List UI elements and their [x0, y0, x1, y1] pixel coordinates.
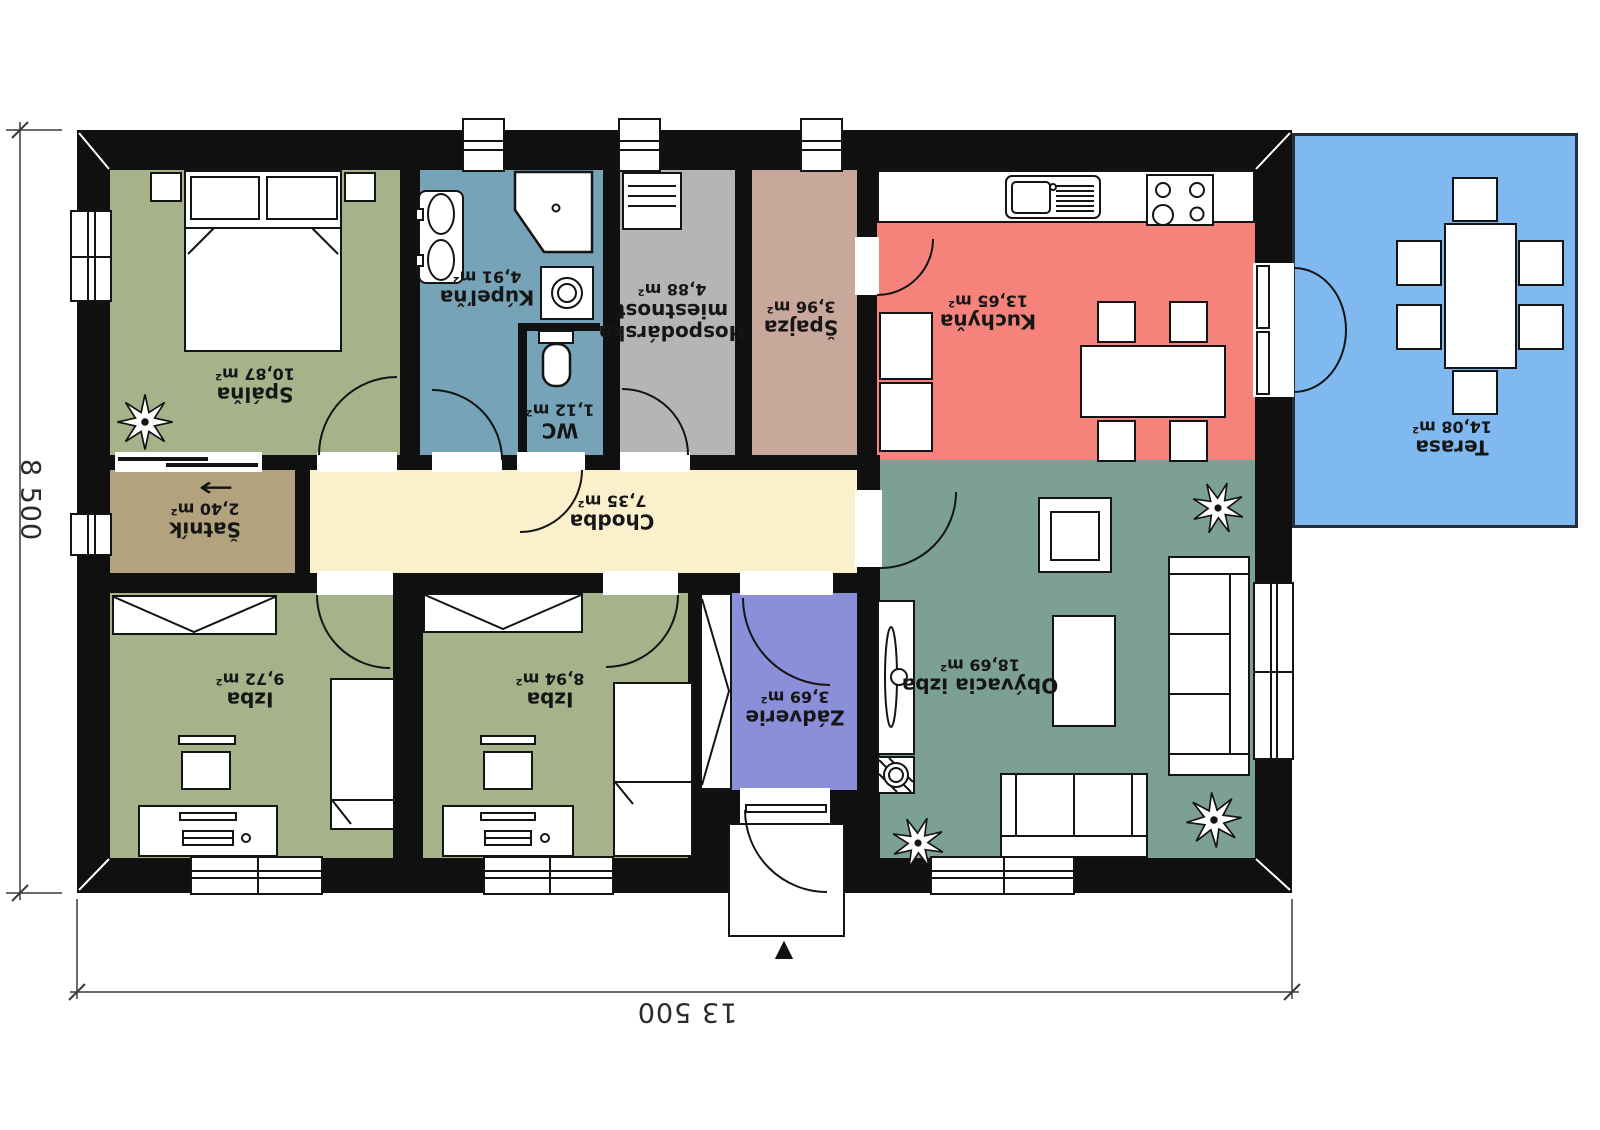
door-arc [1294, 268, 1346, 330]
room-name: Obývacia izba [902, 674, 1058, 696]
door-arc [606, 595, 678, 667]
room-name: WC [526, 419, 595, 441]
room-area: 10,87 m² [215, 364, 295, 382]
sink-tap [1050, 184, 1056, 190]
room-label-hospodarska: Hospodárska miestnosť 4,88 m² [597, 280, 747, 344]
room-area: 13,65 m² [940, 291, 1036, 309]
room-name: Zádverie [745, 706, 844, 728]
room-name: Chodba [570, 510, 655, 532]
entrance-marker-icon: ▲ [775, 934, 793, 962]
room-area: 1,12 m² [526, 400, 595, 418]
dimension-width: 13 500 [637, 997, 737, 1028]
plan-linework [0, 0, 1600, 1130]
room-area: 3,69 m² [745, 687, 844, 705]
wardrobe-rail [425, 595, 581, 629]
wardrobe-rail [114, 597, 275, 632]
washer-drum [552, 278, 582, 308]
room-name: Špajza [764, 316, 838, 338]
room-area: 7,35 m² [570, 491, 655, 509]
room-label-izba2: Izba 8,94 m² [516, 669, 585, 710]
sink-bowl [1012, 182, 1050, 213]
living-room-details [879, 574, 1248, 836]
room-label-kupelna: Kúpeľňa 4,91 m² [440, 267, 535, 308]
floor-plan: Spálňa 10,87 m² Kúpeľňa 4,91 m² WC 1,12 … [0, 0, 1600, 1130]
room-area: 9,72 m² [216, 669, 285, 687]
kitchen-fixtures [628, 176, 1204, 225]
door-arc [745, 810, 827, 892]
dimension-height: 8 500 [15, 459, 46, 541]
corner-seams [79, 133, 1290, 890]
room-label-wc: WC 1,12 m² [526, 400, 595, 441]
room-label-spajza: Špajza 3,96 m² [764, 297, 838, 338]
room-area: 4,88 m² [597, 280, 747, 298]
door-arc [432, 390, 502, 460]
burner [1190, 183, 1204, 197]
room-name: Terasa [1412, 436, 1492, 458]
room-area: 8,94 m² [516, 669, 585, 687]
room-name: Hospodárska miestnosť [597, 299, 747, 344]
room-label-terasa: Terasa 14,08 m² [1412, 417, 1492, 458]
room-area: 3,96 m² [764, 297, 838, 315]
plant-icon [1184, 474, 1252, 542]
plant-icon [883, 808, 953, 878]
shower-icon [515, 172, 592, 252]
door-arc [622, 389, 688, 455]
door-arc [743, 598, 830, 685]
room-name: Šatník [169, 518, 241, 540]
room-label-chodba: Chodba 7,35 m² [570, 491, 655, 532]
room-name: Kuchyňa [940, 310, 1036, 332]
room-name: Kúpeľňa [440, 286, 535, 308]
toilet-icon [543, 344, 570, 386]
burner [1153, 205, 1173, 225]
door-arc [880, 492, 956, 568]
dimension-lines [6, 122, 1300, 1000]
door-arc [1294, 330, 1346, 392]
door-arc [319, 377, 397, 455]
room-area: 4,91 m² [440, 267, 535, 285]
slider-direction-arrow-icon: ← [198, 471, 233, 504]
room-area: 14,08 m² [1412, 417, 1492, 435]
plants [117, 394, 1252, 878]
room-label-obyvacia: Obývacia izba 18,69 m² [902, 655, 1058, 696]
burner [1191, 208, 1204, 221]
sink-basin [428, 194, 454, 234]
sink-tap [416, 255, 423, 266]
room-area: 18,69 m² [902, 655, 1058, 673]
room-label-spalna: Spálňa 10,87 m² [215, 364, 295, 405]
room-name: Izba [516, 688, 585, 710]
door-arc [317, 595, 390, 668]
door-arc [877, 239, 933, 295]
room-label-izba1: Izba 9,72 m² [216, 669, 285, 710]
room-label-kuchyna: Kuchyňa 13,65 m² [940, 291, 1036, 332]
stove-flue [884, 763, 908, 787]
plant-icon [117, 394, 172, 449]
room-name: Izba [216, 688, 285, 710]
wardrobe-rail [702, 599, 729, 785]
plant-icon [1175, 781, 1253, 859]
sink-tap [416, 209, 423, 220]
burner [1156, 183, 1170, 197]
room-label-satnik: Šatník 2,40 m² [169, 499, 241, 540]
room-label-zadverie: Zádverie 3,69 m² [745, 687, 844, 728]
room-name: Spálňa [215, 383, 295, 405]
washer-drum-inner [558, 284, 576, 302]
